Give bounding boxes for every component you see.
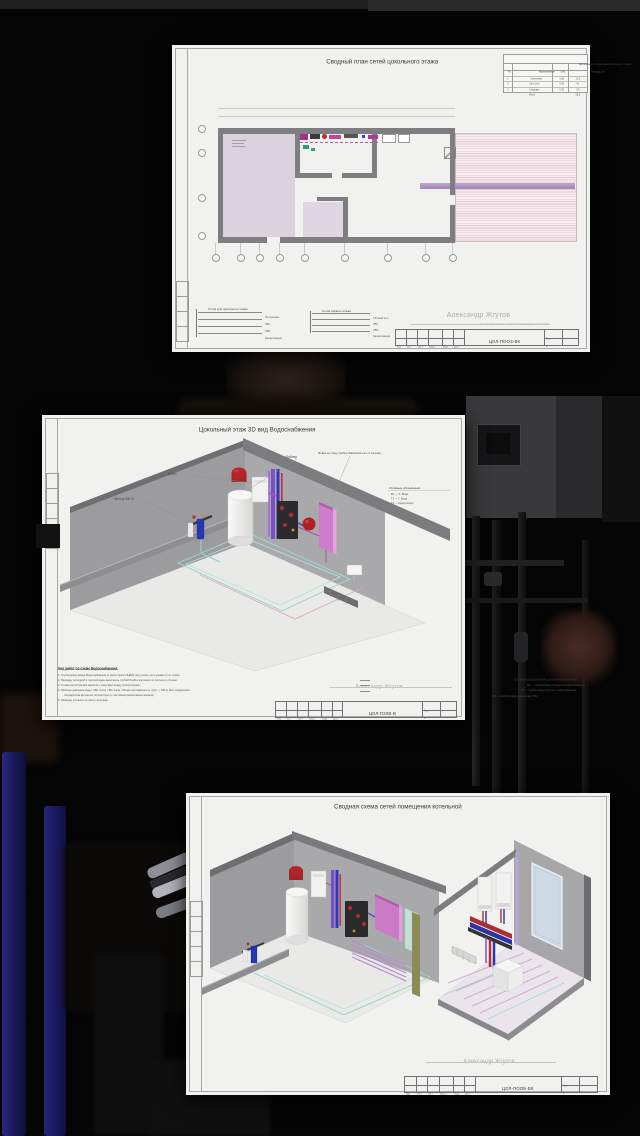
foreground-obstruction (36, 524, 60, 548)
stamp-sheet-number: 1 (424, 711, 430, 729)
equipment-symbol (362, 135, 365, 138)
equipment-symbol-green (303, 145, 309, 149)
small-room-shell (434, 840, 591, 1041)
stamp-sheet-number: 1 (563, 1086, 569, 1104)
sheet-title: Сводный план сетей цокольного этажа (232, 53, 532, 71)
wall-boiler (252, 477, 269, 502)
legend-symbols: Условные обозначения В1 — Х. Вода Т3 — Г… (388, 486, 450, 505)
legend-line (312, 325, 370, 326)
dark-pipe (472, 516, 480, 786)
wall (280, 237, 455, 243)
legend-line (198, 326, 262, 327)
legend-marker (360, 691, 370, 692)
table-cell: 0,00 (552, 83, 568, 101)
axis-bubble (301, 254, 309, 262)
table-cell: Итого (512, 88, 552, 106)
legend-item: Канализация (265, 331, 326, 349)
video-frame: { "scene": { "colors": {"bg":"#050505","… (0, 0, 640, 1136)
drawing-sheet-boiler: Сводная схема сетей помещения котельной (186, 793, 610, 1095)
axis-extension (259, 243, 260, 254)
axis-bubble (198, 232, 206, 240)
radiator (452, 946, 476, 964)
collector-manifold (345, 901, 368, 937)
room-label-text (232, 143, 244, 144)
olive-duct (412, 912, 420, 997)
expansion-vessel-red (232, 468, 247, 483)
expansion-tank-round (303, 518, 316, 531)
wall (450, 128, 455, 195)
margin-stamp-cell (176, 296, 190, 312)
axis-bubble (276, 254, 284, 262)
legend-item: Т4 — Циркуляция (391, 501, 414, 505)
room-shell (60, 438, 450, 671)
iso-scene-boiler-room (194, 813, 602, 1053)
equipment-symbol (329, 135, 341, 139)
legend-marker (360, 680, 370, 681)
wall (218, 128, 223, 243)
person-hand (542, 610, 616, 684)
pipe-fitting (514, 632, 528, 662)
equipment-symbol-green (311, 148, 315, 151)
margin-stamp-cell (176, 281, 190, 297)
axis-bubble (384, 254, 392, 262)
document-code: ЦОЛ-ПООБ-ВК (475, 1081, 561, 1099)
dark-pipe-horizontal (460, 598, 588, 603)
table-cell: 3 (504, 83, 512, 101)
window (532, 863, 562, 949)
axis-bubble (237, 254, 245, 262)
stamp-sheet-number: 1 (546, 339, 552, 357)
margin-stamp-cell (176, 311, 190, 327)
water-heater-tank (228, 490, 253, 546)
fixture-symbol (382, 134, 396, 143)
margin-stamp-cell (176, 326, 190, 342)
blue-pipe-left (2, 752, 26, 1136)
fixture-symbol (398, 134, 410, 143)
equipment-symbol (310, 134, 320, 139)
blue-pipe-right (44, 806, 66, 1136)
room-fill-left (223, 133, 295, 237)
annotation-filter: Фильтр BB 10 (114, 497, 135, 501)
axis-bubble (449, 254, 457, 262)
supply-pipe-band (420, 183, 575, 189)
axis-extension (452, 243, 453, 254)
axis-extension (387, 243, 388, 254)
pipe-wall-area (456, 512, 640, 798)
annotation-sink: Мойка на стену, прибор Waterblock на 1-2… (318, 451, 381, 455)
legend-line (198, 333, 262, 334)
document-code: ЦОЛ-ПООЗ-ВК (464, 334, 544, 352)
legend-title: Условные обозначения (389, 486, 421, 490)
corner-pipe (516, 853, 519, 945)
axis-bubble (341, 254, 349, 262)
title-block: Изм. Кол. Лист №док. Подп. Дата ЦОЛ-ПООБ… (404, 1076, 598, 1093)
legend-line (312, 319, 370, 320)
title-block: Изм. Кол. Лист №док. Подп. Дата ЦОЛ-ПООЗ… (395, 329, 579, 346)
expansion-vessel-red (289, 866, 303, 880)
dimension-line (218, 116, 455, 117)
wall-boiler (311, 871, 326, 897)
axis-extension (279, 243, 280, 254)
legend-line (198, 312, 262, 313)
wall (295, 173, 332, 178)
pipe-risers (331, 870, 341, 928)
twin-wall-boilers (478, 873, 511, 911)
room-label-text (232, 140, 246, 141)
collector-manifold (277, 501, 298, 539)
wall (372, 133, 377, 178)
axis-bubble (198, 125, 206, 133)
iso-scene-water-supply: Котёл Фильтр BB 10 Бойлер Мойка на стену… (50, 433, 452, 678)
drawing-sheet-plan: Сводный план сетей цокольного этажа Эксп… (172, 45, 590, 352)
room-table: Экспликация помещений цокольного этажа №… (503, 54, 588, 93)
wall (218, 128, 455, 134)
notes-line: 5. Размеры уточнять по месту монтажа. (58, 693, 244, 711)
axis-extension (425, 243, 426, 254)
dark-pipe-horizontal (464, 560, 564, 566)
pipe-dashed-line (300, 142, 380, 143)
legend-item: В1 — Х. Вода (391, 492, 409, 496)
legend-bracket (196, 309, 197, 337)
axis-bubble (198, 149, 206, 157)
axis-extension (240, 243, 241, 254)
dimension-line (218, 108, 455, 109)
equipment-symbol (344, 134, 358, 138)
axis-bubble (212, 254, 220, 262)
annotation-boiler: Котёл (168, 472, 177, 476)
legend-line (312, 313, 370, 314)
table-cell: 26,9 (568, 88, 587, 106)
hatch-glyph (444, 147, 456, 159)
legend-bracket (310, 311, 311, 333)
wall (343, 197, 348, 243)
wall (218, 237, 267, 243)
room-label-text (232, 146, 245, 147)
top-light-band-right (368, 0, 640, 11)
equipment-symbol (300, 134, 308, 140)
legend-marker (360, 685, 370, 686)
legend-line (198, 319, 262, 320)
room-fill-middle (303, 202, 343, 237)
wall (450, 205, 455, 243)
background-wall-black (602, 396, 640, 522)
legend-line (312, 331, 370, 332)
equipment-symbol (368, 135, 378, 139)
axis-extension (215, 243, 216, 254)
axis-bubble (422, 254, 430, 262)
water-heater-tank (286, 888, 308, 945)
title-block: Изм. Кол. Лист №док. Подп. Дата ЦОЛ-П20В… (275, 701, 457, 718)
axis-bubble (198, 194, 206, 202)
pink-heat-panel (319, 502, 337, 555)
equipment-symbol (322, 134, 327, 139)
axis-extension (304, 243, 305, 254)
axis-extension (344, 243, 345, 254)
legend-item: Т3 — Г. Вода (391, 497, 408, 501)
drawing-sheet-iso3d: Цокольный этаж 3D вид Водоснабжения (42, 415, 465, 720)
annotation-tank: Бойлер (286, 455, 297, 459)
axis-bubble (256, 254, 264, 262)
document-code: ЦОЛ-П20В-В (342, 706, 422, 724)
pipe-fitting (484, 572, 502, 586)
wall-panel-screen (486, 433, 510, 454)
expansion-tank-highlight (305, 520, 309, 524)
